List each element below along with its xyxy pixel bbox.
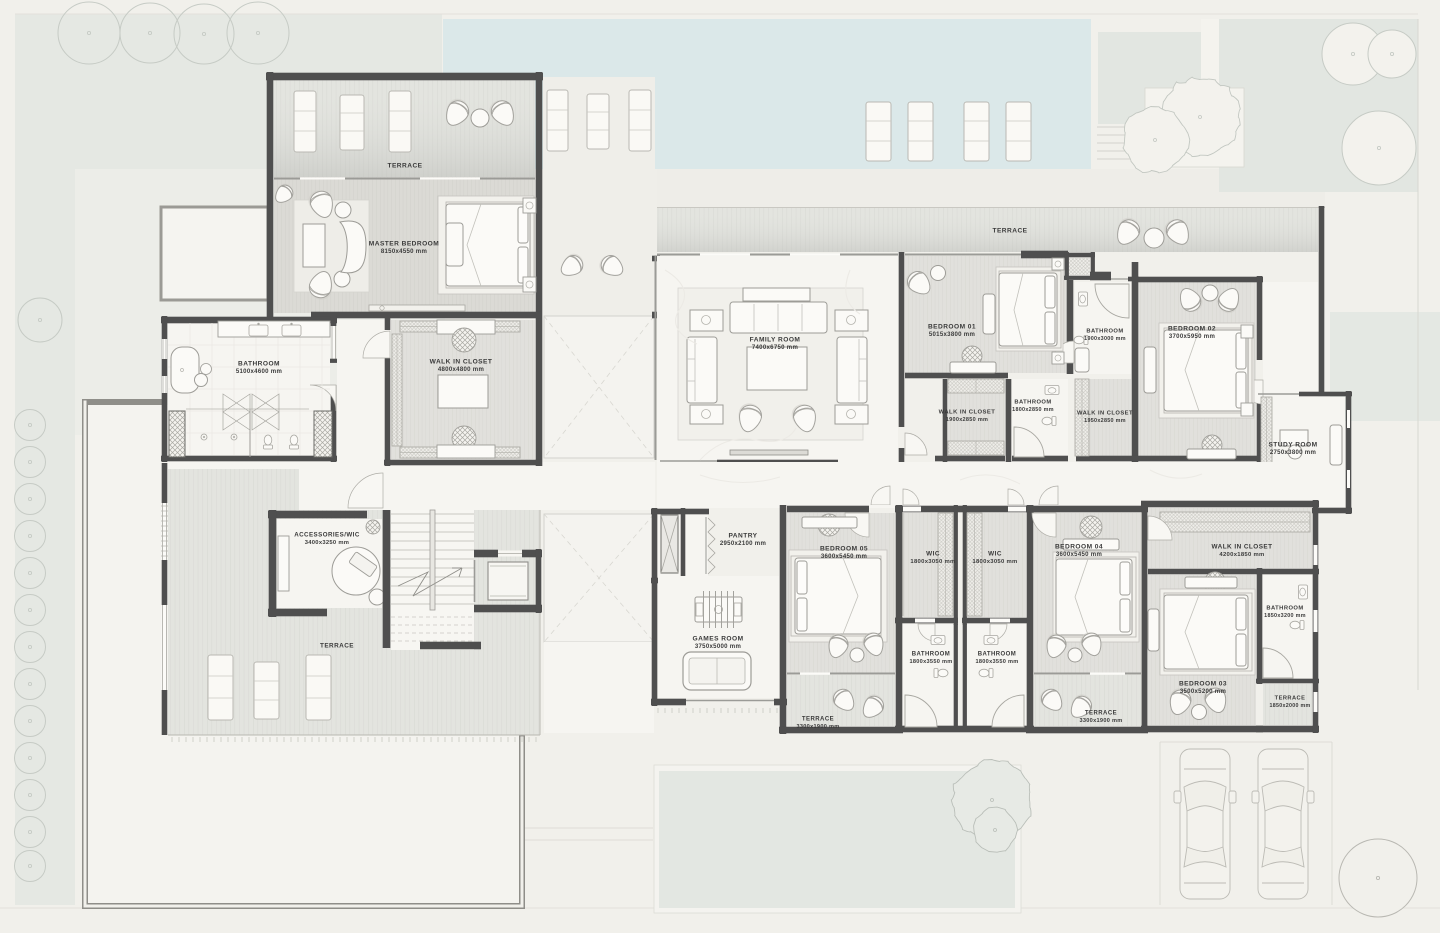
svg-text:1900x2850 mm: 1900x2850 mm: [946, 417, 988, 423]
svg-text:1800x3550 mm: 1800x3550 mm: [975, 659, 1018, 665]
svg-text:5015x3800 mm: 5015x3800 mm: [929, 332, 975, 338]
svg-text:BEDROOM 03: BEDROOM 03: [1179, 681, 1227, 688]
svg-text:BEDROOM 04: BEDROOM 04: [1055, 544, 1103, 551]
svg-text:ACCESSORIES/WIC: ACCESSORIES/WIC: [294, 532, 360, 539]
svg-text:BATHROOM: BATHROOM: [238, 361, 280, 368]
svg-text:8150x4550 mm: 8150x4550 mm: [381, 249, 427, 255]
svg-text:TERRACE: TERRACE: [1275, 696, 1306, 702]
svg-text:BEDROOM 02: BEDROOM 02: [1168, 326, 1216, 333]
svg-text:BATHROOM: BATHROOM: [1014, 400, 1051, 406]
svg-text:BATHROOM: BATHROOM: [1086, 329, 1123, 335]
svg-text:TERRACE: TERRACE: [387, 163, 422, 170]
svg-text:WIC: WIC: [926, 551, 940, 558]
svg-text:WIC: WIC: [988, 551, 1002, 558]
svg-text:TERRACE: TERRACE: [992, 228, 1027, 235]
svg-text:WALK IN CLOSET: WALK IN CLOSET: [1077, 411, 1133, 417]
svg-text:TERRACE: TERRACE: [320, 643, 354, 650]
svg-text:TERRACE: TERRACE: [1085, 711, 1117, 717]
svg-text:5100x4600 mm: 5100x4600 mm: [236, 369, 282, 375]
svg-text:3300x1900 mm: 3300x1900 mm: [1079, 718, 1122, 724]
svg-text:WALK IN CLOSET: WALK IN CLOSET: [939, 410, 996, 416]
svg-text:WALK IN CLOSET: WALK IN CLOSET: [1212, 544, 1273, 551]
svg-text:BATHROOM: BATHROOM: [978, 652, 1016, 658]
svg-text:BEDROOM 05: BEDROOM 05: [820, 546, 868, 553]
svg-text:7400x6750 mm: 7400x6750 mm: [752, 345, 798, 351]
svg-text:3600x5450 mm: 3600x5450 mm: [1056, 552, 1102, 558]
svg-text:3400x3250 mm: 3400x3250 mm: [305, 540, 350, 546]
svg-text:2750x3800 mm: 2750x3800 mm: [1270, 450, 1316, 456]
svg-text:GAMES ROOM: GAMES ROOM: [692, 636, 743, 643]
svg-text:MASTER BEDROOM: MASTER BEDROOM: [369, 241, 439, 248]
svg-text:1950x2850 mm: 1950x2850 mm: [1084, 418, 1126, 424]
svg-text:BATHROOM: BATHROOM: [912, 652, 950, 658]
svg-text:1800x3550 mm: 1800x3550 mm: [909, 659, 952, 665]
svg-text:3750x5000 mm: 3750x5000 mm: [695, 644, 741, 650]
svg-text:1850x3200 mm: 1850x3200 mm: [1264, 613, 1306, 619]
svg-text:2950x2100 mm: 2950x2100 mm: [720, 541, 766, 547]
svg-text:4200x1850 mm: 4200x1850 mm: [1219, 552, 1264, 558]
svg-text:BEDROOM 01: BEDROOM 01: [928, 324, 976, 331]
svg-text:4800x4800 mm: 4800x4800 mm: [438, 367, 484, 373]
svg-text:BATHROOM: BATHROOM: [1266, 606, 1303, 612]
svg-text:3500x5200 mm: 3500x5200 mm: [1180, 689, 1226, 695]
svg-text:PANTRY: PANTRY: [728, 533, 757, 540]
svg-text:1800x3050 mm: 1800x3050 mm: [972, 559, 1017, 565]
svg-text:TERRACE: TERRACE: [802, 717, 834, 723]
svg-text:1800x2850 mm: 1800x2850 mm: [1012, 407, 1054, 413]
svg-text:STUDY ROOM: STUDY ROOM: [1268, 442, 1317, 449]
svg-text:WALK IN CLOSET: WALK IN CLOSET: [430, 359, 493, 366]
svg-text:FAMILY ROOM: FAMILY ROOM: [750, 337, 801, 344]
svg-text:3600x5450 mm: 3600x5450 mm: [821, 554, 867, 560]
svg-text:1800x3050 mm: 1800x3050 mm: [910, 559, 955, 565]
svg-text:3300x1900 mm: 3300x1900 mm: [796, 724, 839, 730]
svg-text:1900x3000 mm: 1900x3000 mm: [1084, 336, 1126, 342]
svg-text:1850x2000 mm: 1850x2000 mm: [1269, 703, 1310, 709]
svg-text:3700x5950 mm: 3700x5950 mm: [1169, 334, 1215, 340]
